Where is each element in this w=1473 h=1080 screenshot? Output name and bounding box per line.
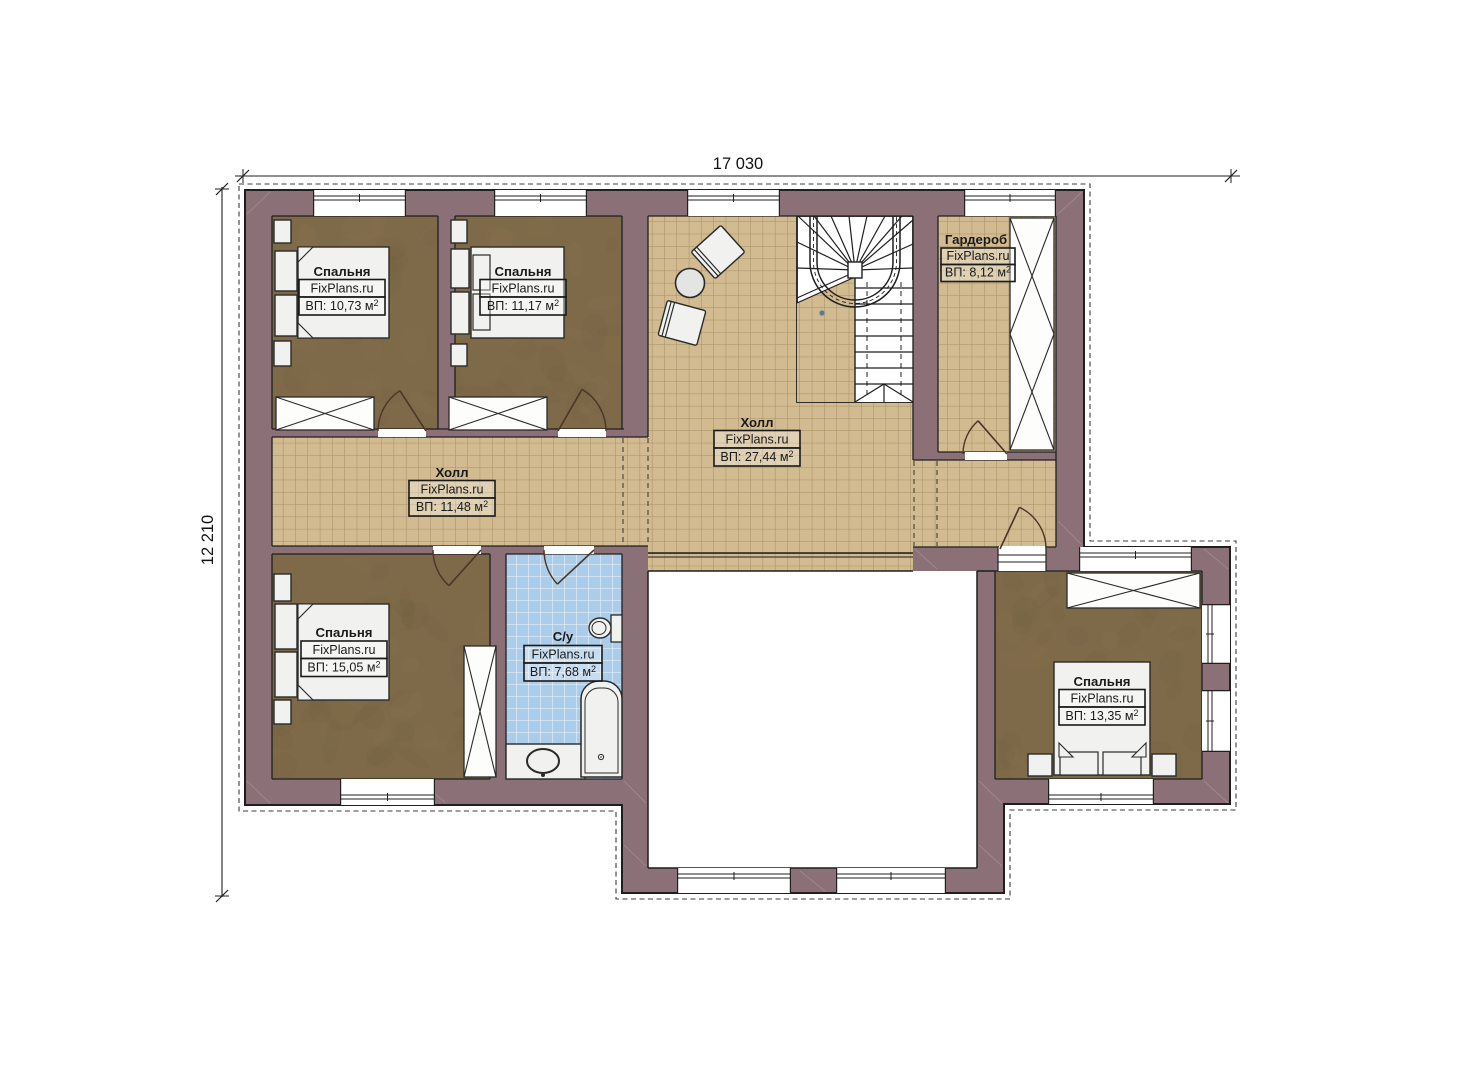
- svg-text:ВП: 13,35 м2: ВП: 13,35 м2: [1065, 708, 1138, 723]
- svg-text:ВП: 7,68 м2: ВП: 7,68 м2: [530, 664, 596, 679]
- svg-text:Холл: Холл: [740, 415, 773, 430]
- svg-text:ВП: 11,17 м2: ВП: 11,17 м2: [487, 298, 559, 313]
- svg-text:FixPlans.ru: FixPlans.ru: [311, 282, 374, 296]
- svg-text:FixPlans.ru: FixPlans.ru: [947, 249, 1010, 263]
- svg-text:Холл: Холл: [435, 465, 468, 480]
- svg-text:FixPlans.ru: FixPlans.ru: [313, 643, 376, 657]
- svg-text:ВП: 11,48 м2: ВП: 11,48 м2: [416, 499, 488, 514]
- svg-text:Спальня: Спальня: [314, 264, 371, 279]
- svg-text:Спальня: Спальня: [495, 264, 552, 279]
- svg-text:ВП: 10,73 м2: ВП: 10,73 м2: [305, 298, 378, 313]
- svg-text:ВП: 15,05 м2: ВП: 15,05 м2: [307, 660, 380, 675]
- svg-text:Спальня: Спальня: [316, 625, 373, 640]
- svg-text:FixPlans.ru: FixPlans.ru: [1071, 692, 1134, 706]
- svg-text:FixPlans.ru: FixPlans.ru: [421, 483, 484, 497]
- svg-text:FixPlans.ru: FixPlans.ru: [492, 282, 555, 296]
- svg-text:FixPlans.ru: FixPlans.ru: [532, 648, 595, 662]
- svg-text:Спальня: Спальня: [1074, 674, 1131, 689]
- svg-text:17 030: 17 030: [713, 155, 763, 173]
- svg-text:С/у: С/у: [553, 629, 574, 644]
- svg-text:12 210: 12 210: [199, 515, 217, 565]
- svg-text:FixPlans.ru: FixPlans.ru: [726, 433, 789, 447]
- svg-text:ВП: 8,12 м2: ВП: 8,12 м2: [945, 265, 1011, 280]
- svg-text:Гардероб: Гардероб: [945, 232, 1007, 247]
- svg-text:ВП: 27,44 м2: ВП: 27,44 м2: [720, 449, 793, 464]
